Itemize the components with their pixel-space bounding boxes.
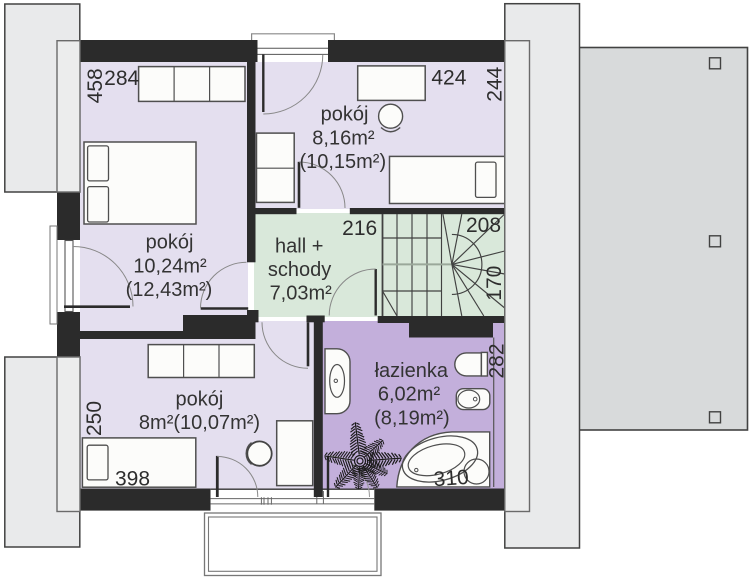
svg-text:(8,19m²): (8,19m²) (374, 407, 450, 429)
svg-text:pokój: pokój (321, 104, 369, 126)
svg-text:398: 398 (115, 468, 150, 491)
svg-text:216: 216 (342, 217, 377, 240)
svg-text:hall +: hall + (275, 235, 323, 257)
svg-text:8m²(10,07m²): 8m²(10,07m²) (139, 412, 260, 434)
svg-text:schody: schody (268, 259, 331, 281)
svg-text:282: 282 (486, 343, 509, 378)
svg-text:10,24m²: 10,24m² (133, 255, 207, 277)
svg-text:pokój: pokój (146, 232, 194, 254)
svg-text:7,03m²: 7,03m² (270, 283, 333, 305)
svg-text:310: 310 (433, 466, 470, 491)
svg-text:284: 284 (104, 67, 139, 90)
svg-text:170: 170 (483, 266, 506, 301)
svg-text:250: 250 (83, 401, 106, 436)
svg-text:424: 424 (431, 67, 466, 90)
svg-text:208: 208 (466, 214, 501, 237)
svg-text:6,02m²: 6,02m² (378, 384, 441, 406)
svg-text:łazienka: łazienka (375, 360, 449, 382)
svg-text:244: 244 (484, 66, 507, 101)
svg-text:8,16m²: 8,16m² (312, 127, 375, 149)
svg-text:pokój: pokój (175, 389, 223, 411)
svg-text:(12,43m²): (12,43m²) (126, 279, 213, 301)
svg-text:(10,15m²): (10,15m²) (299, 151, 386, 173)
